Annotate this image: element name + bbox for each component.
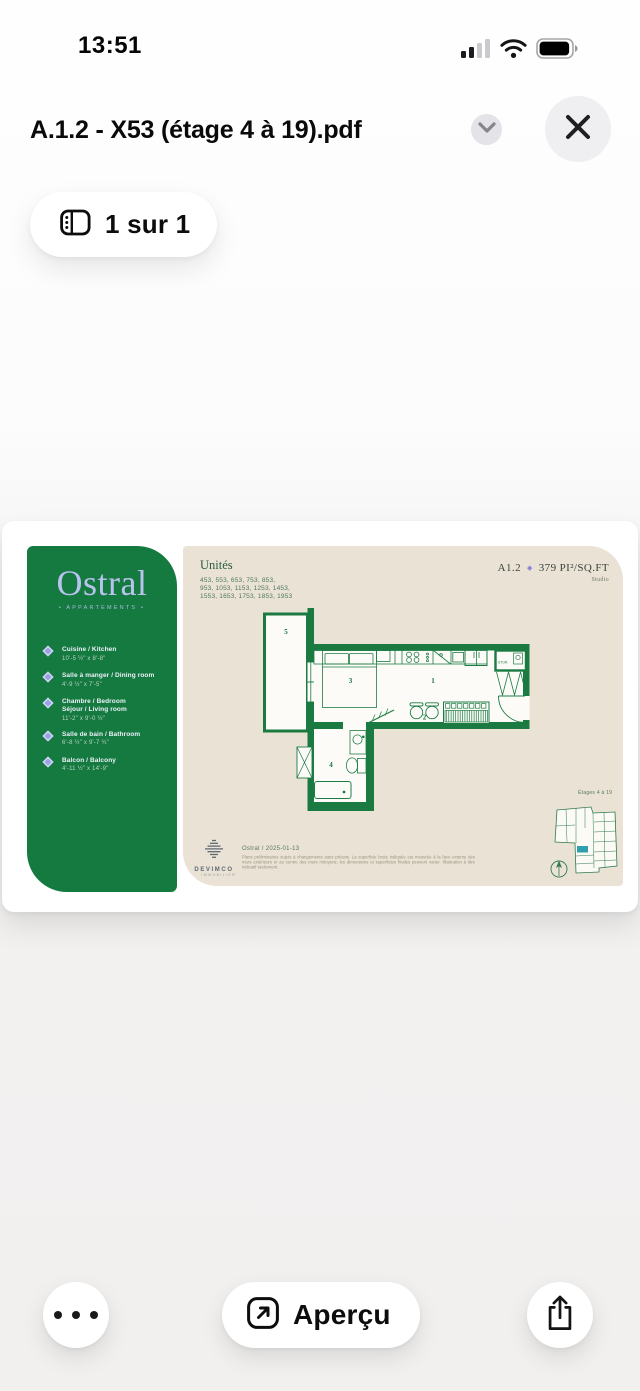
pdf-page[interactable]: Ostral • APPARTEMENTS • Cuisine / Kitche… xyxy=(2,521,638,912)
unit-diamond-icon: ◆ xyxy=(527,564,533,572)
brand-tagline: • APPARTEMENTS • xyxy=(27,605,177,611)
legend-item-bedroom-living: Chambre / Bedroom Séjour / Living room 1… xyxy=(27,698,177,722)
devimco-logo-mark xyxy=(201,847,227,864)
share-button[interactable] xyxy=(527,1282,593,1348)
disclaimer: Plans préliminaires sujets à changements… xyxy=(242,855,475,885)
keyplan-highlighted-unit xyxy=(577,846,588,853)
document-title: A.1.2 - X53 (étage 4 à 19).pdf xyxy=(30,112,362,148)
unit-area: 379 PI²/SQ.FT xyxy=(539,562,609,574)
diamond-icon xyxy=(42,697,53,708)
floor-plan: STOR. xyxy=(255,606,547,818)
chevron-down-icon xyxy=(478,121,496,139)
thumbnails-sidebar-icon xyxy=(60,209,91,241)
units-title: Unités xyxy=(200,558,292,573)
room-legend: Cuisine / Kitchen 10'-5 ½" x 8'-8" Salle… xyxy=(27,646,177,783)
room-label-dining: 2 xyxy=(423,714,427,722)
plan-date: Ostral / 2025-01-13 xyxy=(242,846,299,852)
brand-name: Ostral xyxy=(27,564,177,602)
page-indicator[interactable]: 1 sur 1 xyxy=(30,192,217,257)
room-label-kitchen: 1 xyxy=(431,677,435,685)
keyplan-label: Étages 4 à 19 xyxy=(578,790,612,796)
diamond-icon xyxy=(42,671,53,682)
diamond-icon xyxy=(42,730,53,741)
keyplan xyxy=(538,800,630,892)
developer-logo: DEVIMCO IMMOBILIER xyxy=(186,838,242,882)
diamond-icon xyxy=(42,645,53,656)
open-preview-icon xyxy=(246,1296,280,1335)
screen: 13:51 xyxy=(0,0,640,1391)
compass-icon xyxy=(551,861,567,878)
share-icon xyxy=(543,1292,577,1339)
close-button[interactable] xyxy=(545,96,611,162)
preview-button[interactable]: Aperçu xyxy=(222,1282,420,1348)
unit-code: A1.2 xyxy=(498,562,521,574)
legend-item-dining: Salle à manger / Dining room 4'-9 ½" x 7… xyxy=(27,672,177,689)
more-options-button[interactable] xyxy=(43,1282,109,1348)
room-label-bathroom: 4 xyxy=(329,761,333,769)
unit-header: A1.2◆379 PI²/SQ.FT Studio xyxy=(498,562,609,583)
closet-label: STOR. xyxy=(498,661,508,665)
unit-type: Studio xyxy=(498,577,609,583)
status-bar: 13:51 xyxy=(0,0,640,70)
developer-subtitle: IMMOBILIER xyxy=(201,873,226,877)
page-indicator-label: 1 sur 1 xyxy=(105,209,190,240)
units-block: Unités 453, 553, 653, 753, 853, 953, 105… xyxy=(200,558,292,602)
legend-item-kitchen: Cuisine / Kitchen 10'-5 ½" x 8'-8" xyxy=(27,646,177,663)
units-list: 453, 553, 653, 753, 853, 953, 1053, 1153… xyxy=(200,577,292,602)
wifi-icon xyxy=(499,37,528,64)
legend-item-balcony: Balcon / Balcony 4'-11 ½" x 14'-9" xyxy=(27,757,177,774)
cellular-signal-icon xyxy=(461,38,491,64)
plan-sheet: Unités 453, 553, 653, 753, 853, 953, 105… xyxy=(183,546,623,886)
status-time: 13:51 xyxy=(78,32,168,60)
battery-icon xyxy=(536,38,578,64)
legend-item-bathroom: Salle de bain / Bathroom 6'-8 ½" x 9'-7 … xyxy=(27,731,177,748)
status-icons xyxy=(461,37,578,64)
title-menu-button[interactable] xyxy=(471,114,502,145)
ellipsis-icon xyxy=(54,1311,98,1319)
room-label-bedroom: 3 xyxy=(349,677,353,685)
brand-panel: Ostral • APPARTEMENTS • Cuisine / Kitche… xyxy=(27,546,177,892)
diamond-icon xyxy=(42,756,53,767)
preview-button-label: Aperçu xyxy=(293,1299,391,1331)
close-icon xyxy=(564,113,592,146)
room-label-balcony: 5 xyxy=(284,628,288,636)
